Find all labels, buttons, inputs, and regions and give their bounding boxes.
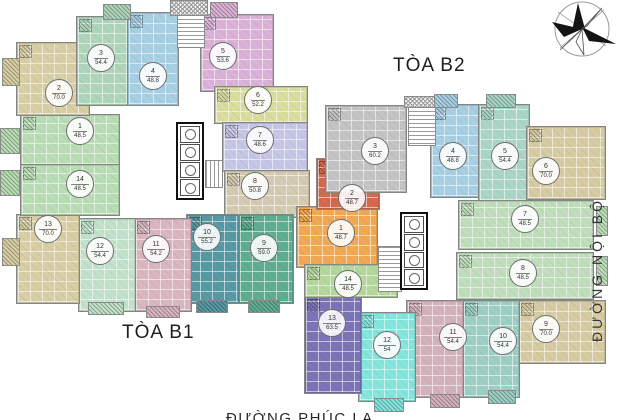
unit-number: 11 <box>444 328 461 338</box>
unit-number: 2 <box>52 84 66 94</box>
hatch-b1-top <box>170 0 208 16</box>
unit-number: 10 <box>198 228 216 238</box>
unit-area: 48.5 <box>517 274 529 282</box>
unit-area: 54.4 <box>95 59 107 67</box>
unit-number: 2 <box>345 189 359 199</box>
unit-label-b1-3: 354.4 <box>87 44 115 72</box>
balcony-strip <box>2 58 20 86</box>
unit-number: 11 <box>147 240 164 250</box>
unit-label-b2-11: 1154.4 <box>439 323 467 351</box>
unit-area: 53.6 <box>217 57 229 65</box>
unit-label-b1-4: 448.8 <box>139 62 167 90</box>
balcony-strip <box>0 170 20 196</box>
unit-area: 48.5 <box>342 285 354 293</box>
tower-b1-label: TÒA B1 <box>122 322 195 344</box>
unit-label-b2-3: 360.2 <box>361 137 389 165</box>
unit-number: 7 <box>253 131 267 141</box>
unit-area: 70.0 <box>53 94 65 102</box>
unit-area: 48.6 <box>254 141 266 149</box>
unit-number: 14 <box>71 175 89 185</box>
unit-area: 54.4 <box>447 338 459 346</box>
unit-area: 52.2 <box>252 101 264 109</box>
elevator-cell <box>404 234 424 251</box>
unit-label-b1-11: 1154.2 <box>142 235 170 263</box>
unit-area: 48.5 <box>519 220 531 228</box>
unit-number: 5 <box>216 47 230 57</box>
balcony-strip <box>430 394 460 408</box>
elevator-cell <box>180 126 200 143</box>
hatch-b2-top <box>404 96 438 108</box>
floor-plan: TÒA B2 TÒA B1 ĐƯỜNG NỘI BỘ ĐƯỜNG PHÚC LA… <box>0 0 625 420</box>
unit-label-b1-6: 652.2 <box>244 86 272 114</box>
unit-area: 54.2 <box>150 250 162 258</box>
unit-number: 4 <box>446 147 460 157</box>
unit-area: 54.4 <box>94 252 106 260</box>
unit-label-b1-12: 1254.4 <box>86 237 114 265</box>
unit-b1-11 <box>134 218 192 312</box>
unit-number: 8 <box>248 177 262 187</box>
elevator-cell <box>404 269 424 286</box>
unit-area: 54.4 <box>497 342 509 350</box>
stairs-b2-top <box>408 106 436 146</box>
core-b2 <box>400 212 428 290</box>
unit-number: 3 <box>368 142 382 152</box>
unit-number: 9 <box>539 320 553 330</box>
unit-area: 59.0 <box>258 249 270 257</box>
unit-number: 9 <box>257 239 271 249</box>
unit-number: 3 <box>94 49 108 59</box>
unit-number: 13 <box>323 314 341 324</box>
unit-label-b2-1: 148.7 <box>327 219 355 247</box>
unit-area: 48.5 <box>74 185 86 193</box>
unit-number: 1 <box>334 224 348 234</box>
balcony-strip <box>88 302 124 315</box>
unit-label-b1-14: 1448.5 <box>66 170 94 198</box>
unit-area: 70.0 <box>540 172 552 180</box>
stairs-b1-top <box>177 14 205 48</box>
unit-area: 63.5 <box>326 324 338 332</box>
road-label-bottom-street: ĐƯỜNG PHÚC LA <box>226 410 374 420</box>
unit-area: 55.2 <box>201 238 213 246</box>
balcony-strip <box>486 94 516 108</box>
balcony-strip <box>248 300 280 313</box>
unit-number: 8 <box>516 264 530 274</box>
stairs-b2-mid <box>378 246 402 292</box>
unit-number: 14 <box>339 275 357 285</box>
unit-area: 70.0 <box>540 330 552 338</box>
unit-number: 1 <box>73 122 87 132</box>
unit-number: 6 <box>251 91 265 101</box>
unit-label-b1-8: 850.8 <box>241 172 269 200</box>
unit-area: 60.2 <box>369 152 381 160</box>
unit-label-b1-9: 959.0 <box>250 234 278 262</box>
unit-number: 4 <box>146 67 160 77</box>
compass-rose-icon <box>540 0 620 60</box>
unit-area: 50.8 <box>249 187 261 195</box>
unit-number: 12 <box>91 242 109 252</box>
elevator-cell <box>404 216 424 233</box>
balcony-strip <box>2 238 20 266</box>
balcony-strip <box>374 398 404 412</box>
road-label-internal-road: ĐƯỜNG NỘI BỘ <box>589 192 605 342</box>
unit-b1-12 <box>78 218 136 312</box>
unit-label-b2-2: 248.7 <box>338 184 366 212</box>
unit-label-b1-5: 553.6 <box>209 42 237 70</box>
balcony-strip <box>488 390 516 404</box>
unit-b1-4 <box>127 12 179 106</box>
unit-area: 48.8 <box>447 157 459 165</box>
unit-number: 7 <box>518 210 532 220</box>
unit-label-b2-4: 448.8 <box>439 142 467 170</box>
elevator-cell <box>180 162 200 179</box>
unit-label-b1-1: 148.5 <box>66 117 94 145</box>
unit-label-b2-5: 554.4 <box>491 142 519 170</box>
unit-number: 5 <box>498 147 512 157</box>
unit-label-b1-10: 1055.2 <box>193 223 221 251</box>
unit-number: 12 <box>378 336 396 346</box>
unit-label-b2-10: 1054.4 <box>489 327 517 355</box>
unit-label-b2-9: 970.0 <box>532 315 560 343</box>
elevator-cell <box>180 179 200 196</box>
unit-area: 48.7 <box>346 199 358 207</box>
balcony-strip <box>103 4 131 20</box>
unit-area: 48.8 <box>147 77 159 85</box>
unit-label-b2-14: 1448.5 <box>334 270 362 298</box>
unit-number: 6 <box>539 162 553 172</box>
unit-label-b2-8: 848.5 <box>509 259 537 287</box>
tower-b2-label: TÒA B2 <box>393 55 466 77</box>
unit-area: 48.5 <box>74 132 86 140</box>
core-b1 <box>176 122 204 200</box>
unit-number: 13 <box>39 220 57 230</box>
elevator-cell <box>180 144 200 161</box>
unit-area: 48.7 <box>335 234 347 242</box>
unit-label-b2-6: 670.0 <box>532 157 560 185</box>
balcony-strip <box>0 128 20 154</box>
balcony-strip <box>196 300 228 313</box>
unit-label-b2-12: 1254 <box>373 331 401 359</box>
balcony-strip <box>210 2 238 18</box>
stairs-b1-mid <box>205 160 223 188</box>
unit-label-b2-7: 748.5 <box>511 205 539 233</box>
balcony-strip <box>434 94 458 108</box>
unit-label-b2-13: 1363.5 <box>318 309 346 337</box>
unit-area: 54 <box>384 346 391 354</box>
unit-area: 54.4 <box>499 157 511 165</box>
unit-label-b1-2: 270.0 <box>45 79 73 107</box>
unit-label-b1-7: 748.6 <box>246 126 274 154</box>
unit-number: 10 <box>494 332 512 342</box>
unit-area: 70.0 <box>42 230 54 238</box>
unit-label-b1-13: 1370.0 <box>34 215 62 243</box>
elevator-cell <box>404 252 424 269</box>
balcony-strip <box>146 306 180 318</box>
